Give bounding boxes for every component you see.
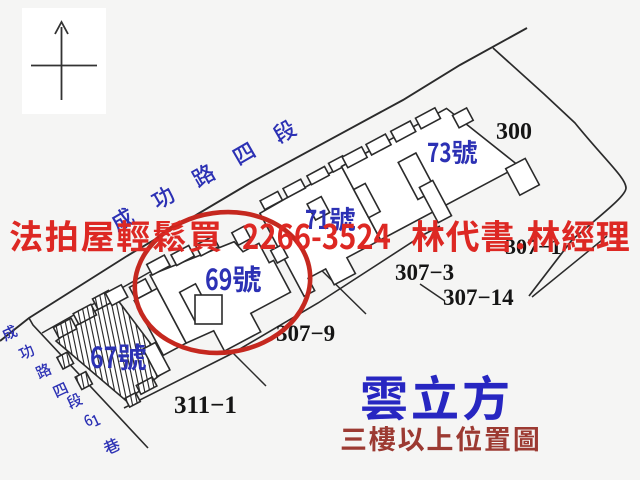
svg-text:311−1: 311−1 <box>174 392 237 419</box>
svg-text:307−9: 307−9 <box>276 321 335 346</box>
svg-text:307−3: 307−3 <box>395 260 454 285</box>
svg-text:307−14: 307−14 <box>443 285 514 310</box>
svg-text:300: 300 <box>496 119 532 145</box>
